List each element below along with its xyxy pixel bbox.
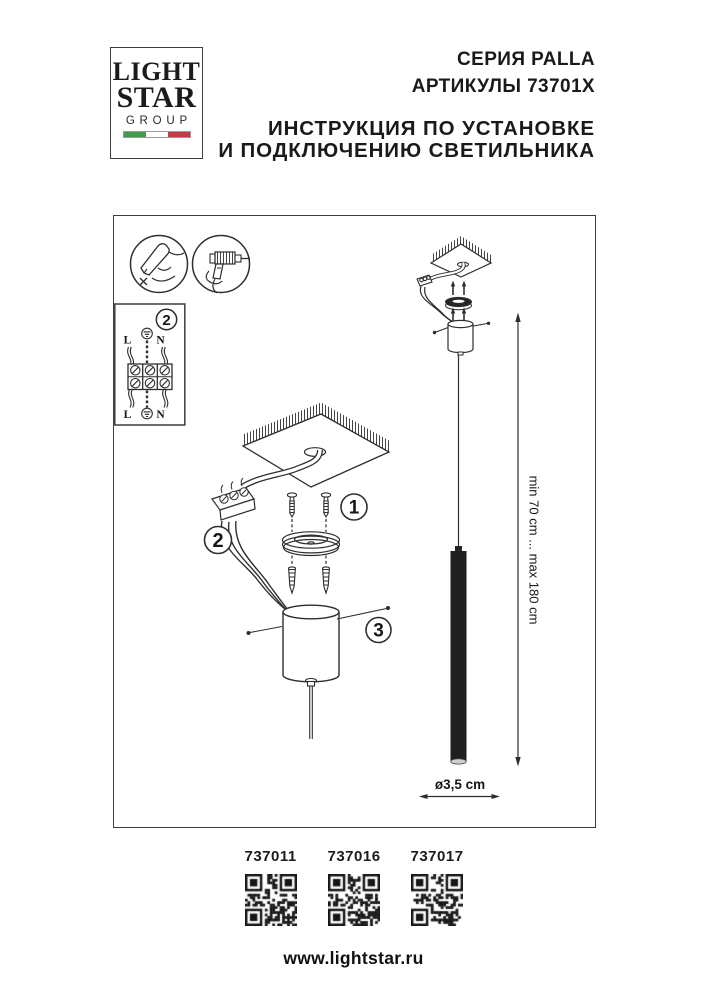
installation-diagram-box: 2 L N L N	[113, 215, 596, 828]
terminal-block-detail	[128, 364, 172, 390]
flag-red-segment	[168, 132, 190, 138]
wall-plugs	[288, 567, 329, 593]
assembled-view	[417, 236, 521, 799]
logo-star-text: STAR	[117, 84, 197, 112]
ceiling-plate	[243, 403, 389, 488]
diameter-dimension	[419, 794, 500, 799]
product: 737017	[411, 848, 463, 926]
instruction-title-line2: И ПОДКЛЮЧЕНИЮ СВЕТИЛЬНИКА	[218, 140, 595, 162]
series-label: СЕРИЯ PALLA	[218, 46, 595, 73]
header: СЕРИЯ PALLA АРТИКУЛЫ 73701X ИНСТРУКЦИЯ П…	[218, 46, 595, 162]
assembled-terminal-block	[417, 275, 432, 286]
qr-code	[328, 874, 380, 926]
step-3-number: 3	[373, 621, 384, 642]
instruction-sheet: LIGHT STAR GROUP СЕРИЯ PALLA АРТИКУЛЫ 73…	[0, 0, 707, 1000]
product-article-label: 737011	[245, 848, 297, 865]
height-range-label: min 70 cm ... max 180 cm	[527, 476, 542, 625]
diameter-label: ø3,5 cm	[435, 777, 485, 792]
neutral-label-top: N	[156, 335, 165, 347]
canopy	[283, 605, 339, 686]
exploded-view	[205, 403, 392, 740]
assembled-canopy	[433, 320, 490, 355]
step-1-number: 1	[349, 498, 360, 519]
product-article-label: 737017	[411, 848, 463, 865]
pendant-tube	[451, 546, 467, 764]
live-label-top: L	[124, 335, 132, 347]
website-link: www.lightstar.ru	[0, 948, 707, 969]
wiring-detail	[115, 304, 185, 425]
neutral-label-bottom: N	[156, 409, 165, 421]
canopy-wires	[221, 521, 292, 615]
product: 737016	[328, 848, 380, 926]
flag-white-segment	[146, 132, 168, 138]
live-label-bottom: L	[124, 409, 132, 421]
qr-code	[411, 874, 463, 926]
italian-flag	[123, 131, 191, 139]
marking-icon	[131, 236, 188, 293]
qr-code	[245, 874, 297, 926]
product: 737011	[245, 848, 297, 926]
step-2-number: 2	[212, 530, 223, 552]
articles-label: АРТИКУЛЫ 73701X	[218, 73, 595, 100]
flag-green-segment	[124, 132, 146, 138]
step-2-detail-number: 2	[162, 312, 170, 329]
product-codes: 737011737016737017	[0, 848, 707, 926]
lightstar-logo: LIGHT STAR GROUP	[110, 47, 203, 159]
mounting-screws	[287, 493, 330, 532]
instruction-title: ИНСТРУКЦИЯ ПО УСТАНОВКЕ И ПОДКЛЮЧЕНИЮ СВ…	[218, 118, 595, 162]
height-dimension	[515, 313, 520, 767]
installation-diagram: 2 L N L N	[114, 216, 595, 827]
drill-icon	[193, 236, 251, 294]
assembled-ring	[446, 297, 472, 309]
suspension-cord	[310, 686, 313, 739]
logo-group-text: GROUP	[121, 115, 192, 127]
instruction-title-line1: ИНСТРУКЦИЯ ПО УСТАНОВКЕ	[218, 118, 595, 140]
product-article-label: 737016	[328, 848, 380, 865]
mounting-ring	[283, 532, 340, 567]
